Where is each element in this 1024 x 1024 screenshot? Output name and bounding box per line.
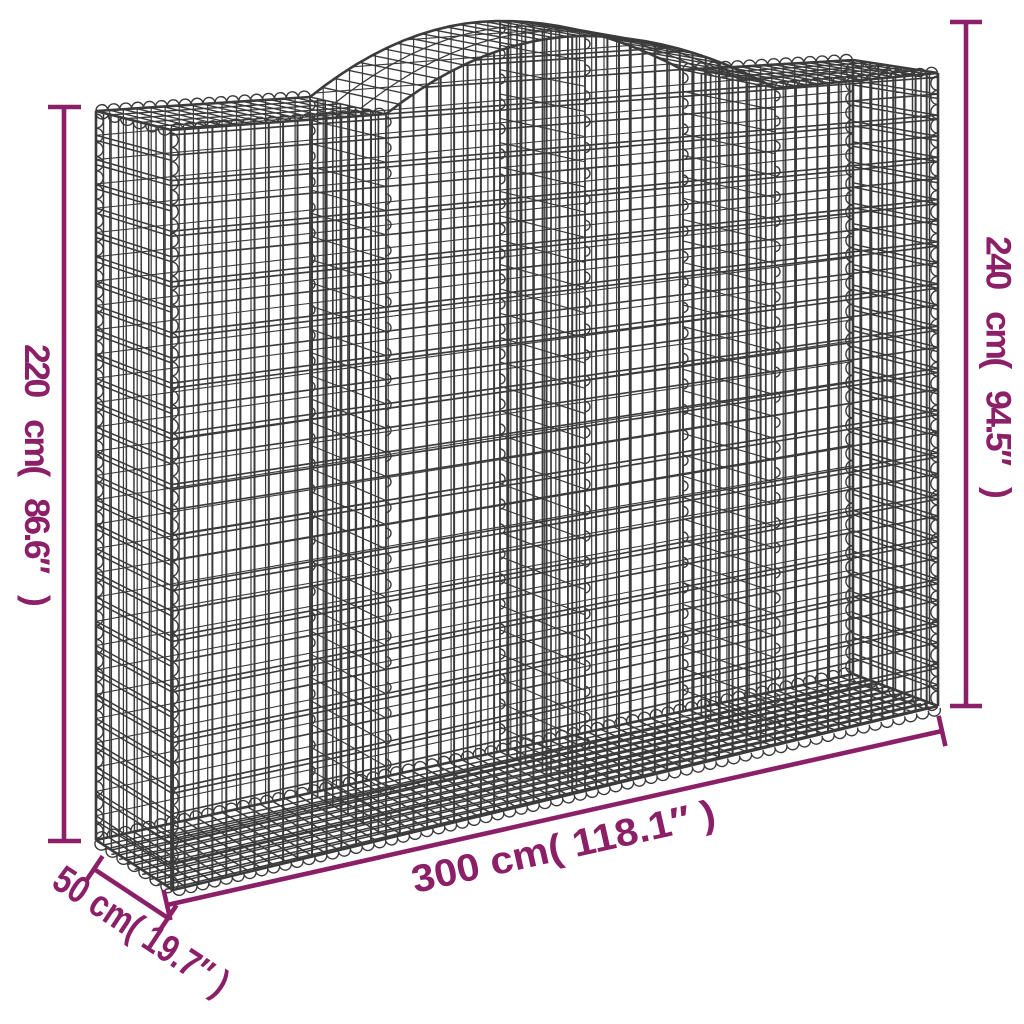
svg-text:220 cm( 86.6″ ): 220 cm( 86.6″ ) xyxy=(17,344,57,606)
svg-text:240 cm( 94.5″ ): 240 cm( 94.5″ ) xyxy=(979,236,1019,498)
